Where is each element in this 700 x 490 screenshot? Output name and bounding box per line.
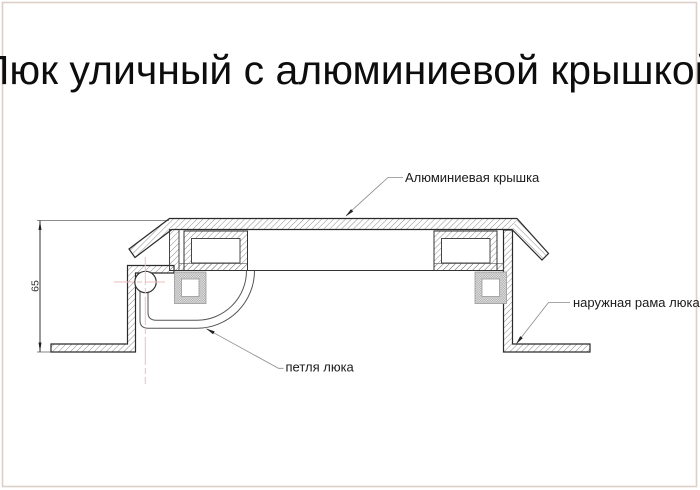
cover-right-flange-fill (512, 219, 549, 261)
lid-end-plate-left (170, 230, 180, 271)
square-tube-left-bore (182, 279, 200, 297)
leader-hinge (207, 329, 284, 369)
drawing-page: Люк уличный с алюминиевой крышкой 65 (0, 0, 700, 490)
dim-arrow-up (39, 221, 42, 230)
hinge-label: петля люка (286, 360, 355, 375)
leader-frame (516, 303, 570, 344)
stiffener-tube-left-bore (192, 239, 241, 264)
frame-right-profile (504, 230, 591, 352)
stiffener-tube-right-bore (442, 239, 491, 264)
dimension-value: 65 (30, 280, 42, 292)
frame-label: наружная рама люка (573, 295, 700, 310)
square-tubes (175, 272, 507, 304)
outer-frame-right (504, 230, 591, 352)
page-title: Люк уличный с алюминиевой крышкой (0, 47, 700, 93)
hatch-section-drawing: Люк уличный с алюминиевой крышкой 65 (0, 0, 700, 490)
dim-arrow-down (39, 343, 42, 352)
lid-structure (170, 230, 504, 271)
square-tube-right-bore (482, 279, 500, 297)
leader-cover (346, 178, 403, 216)
leader-hinge-arrow (206, 329, 215, 335)
callouts: Алюминиевая крышка наружная рама люка пе… (206, 170, 700, 375)
cover-label: Алюминиевая крышка (405, 170, 540, 185)
